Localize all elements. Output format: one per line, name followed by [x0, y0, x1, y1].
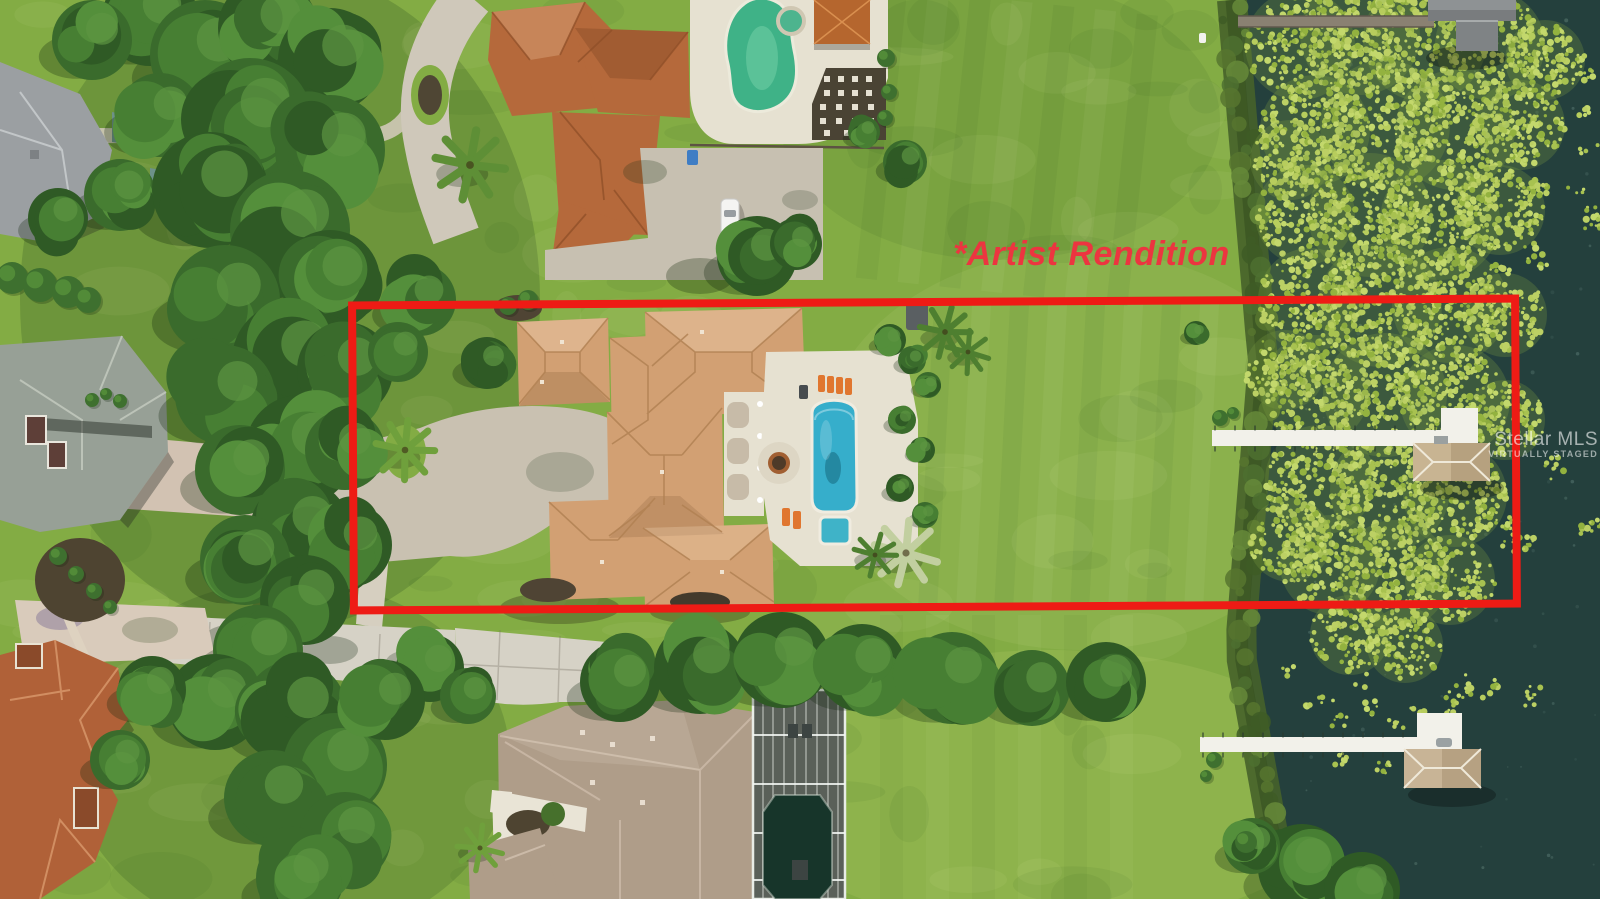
- screened-pool-enclosure: [753, 690, 845, 899]
- lawn-objects: [1199, 33, 1206, 43]
- neighbor-cabana-roof: [814, 0, 870, 50]
- property-boundary-outline: [348, 295, 1521, 615]
- watermark-tagline: VIRTUALLY STAGED: [1488, 450, 1598, 459]
- artist-rendition-label: *Artist Rendition: [953, 235, 1230, 274]
- neighbor-screened-pool: [763, 795, 832, 899]
- blue-bin: [687, 150, 698, 165]
- neighbor-spa: [778, 8, 804, 34]
- aerial-photo: *Artist Rendition Stellar MLS VIRTUALLY …: [0, 0, 1600, 899]
- watermark-brand: Stellar MLS: [1488, 430, 1598, 450]
- stellar-mls-watermark: Stellar MLS VIRTUALLY STAGED: [1488, 430, 1598, 459]
- lawn-mower: [1199, 33, 1206, 43]
